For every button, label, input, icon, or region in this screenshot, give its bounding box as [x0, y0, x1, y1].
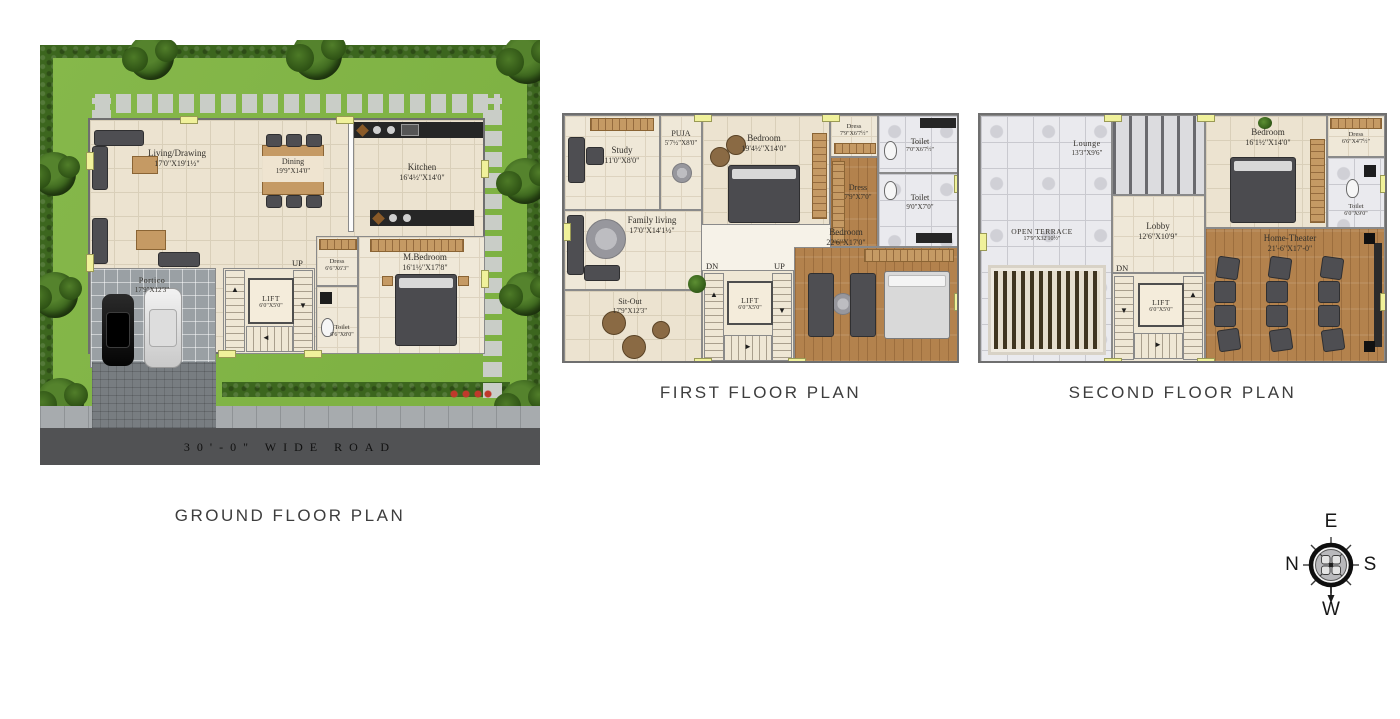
theater-seat: [1214, 281, 1236, 303]
shelf: [590, 118, 654, 131]
kitchen-label: Kitchen 16'4½"X14'0": [399, 162, 444, 182]
speaker-icon: [1364, 233, 1375, 244]
lift: LIFT 6'0"X5'0": [248, 278, 294, 324]
puja-label: PUJA 5'7½"X8'0": [665, 129, 698, 147]
car-roof: [106, 312, 130, 348]
wardrobe: [864, 249, 954, 262]
sink-icon: [373, 126, 381, 134]
stair-arrow-icon: ►: [1154, 341, 1162, 349]
wall-marker: [954, 175, 959, 193]
bed: [728, 165, 800, 223]
theater-seat: [1266, 305, 1288, 327]
puja-motif: [672, 163, 692, 183]
sofa: [94, 130, 144, 146]
second-floor-title: SECOND FLOOR PLAN: [978, 383, 1387, 403]
sofa: [92, 146, 108, 190]
dn-label: DN: [706, 261, 718, 271]
wardrobe: [812, 133, 827, 219]
dining-chair: [286, 195, 302, 208]
stair-flight: [1183, 276, 1203, 360]
wall-marker: [86, 254, 94, 272]
round-chair: [622, 335, 646, 359]
hedge-left: [40, 45, 53, 408]
wall-marker: [563, 223, 571, 241]
bedroom-label: Bedroom 16'1½"X14'0": [1245, 127, 1290, 147]
up-label: UP: [292, 258, 303, 268]
sink-icon: [387, 126, 395, 134]
dress2-label: Dress 7'9"X7'0": [844, 183, 871, 201]
study-label: Study 11'0"X8'0": [605, 145, 640, 165]
wall-marker: [1197, 114, 1215, 122]
wall-marker: [1197, 358, 1215, 363]
dress1-label: Dress 7'9"X6'7½": [840, 123, 868, 138]
dining-label: Dining 19'9"X14'0": [276, 157, 310, 175]
tree-icon: [504, 272, 540, 316]
dress-label: Dress 6'6"X6'3": [325, 258, 348, 273]
wall-marker: [1104, 358, 1122, 363]
bed: [884, 271, 950, 339]
wall-marker: [979, 233, 987, 251]
theater-seat: [1318, 281, 1340, 303]
wardrobe: [834, 143, 876, 154]
dining-chair: [266, 195, 282, 208]
wall-marker: [336, 116, 354, 124]
sofa: [850, 273, 876, 337]
sitout-label: Sit-Out 17'9"X12'3": [613, 297, 647, 315]
wall-marker: [481, 160, 489, 178]
pillows: [888, 275, 946, 287]
kitchen-counter: [370, 210, 474, 226]
stair-arrow-down-icon: ▼: [1120, 307, 1128, 315]
bed: [395, 274, 457, 346]
wall-marker: [694, 114, 712, 122]
pergola: [988, 265, 1106, 355]
stair-flight: [293, 270, 313, 352]
wall-marker: [788, 358, 806, 363]
road: 30'-0" WIDE ROAD: [40, 428, 540, 465]
theater-seat: [1214, 305, 1236, 327]
wall-marker: [304, 350, 322, 358]
theater-seat: [1318, 305, 1340, 327]
dress-label: Dress 6'6"X4'7½": [1342, 131, 1370, 146]
compass-west-label: W: [1322, 599, 1340, 621]
stair-arrow-up-icon: ▲: [1189, 291, 1197, 299]
pergola-slats: [994, 271, 1100, 349]
wall-marker: [954, 293, 959, 311]
wardrobe: [1330, 118, 1382, 129]
sink-icon: [403, 214, 411, 222]
driveway: [92, 362, 216, 428]
stair-flight: [704, 273, 724, 361]
bedroom2-label: Bedroom 22'6"X17'0": [826, 227, 865, 247]
dn-label: DN: [1116, 263, 1128, 273]
desk-chair: [586, 147, 604, 165]
vanity-counter: [916, 233, 952, 243]
dining-chair: [306, 134, 322, 147]
family-living-label: Family living 17'0"X14'1½": [628, 215, 677, 235]
lift: LIFT 6'0"X5'0": [727, 281, 773, 325]
side-table: [382, 276, 393, 286]
wall-marker: [218, 350, 236, 358]
compass-rose: E N S W: [1281, 513, 1381, 617]
white-car: [144, 288, 182, 368]
living-room-label: Living/Drawing 17'0"X19'1½": [148, 148, 206, 168]
toilet-icon: [884, 141, 897, 160]
bedroom1-label: Bedroom 19'4½"X14'0": [741, 133, 786, 153]
speaker-icon: [1364, 341, 1375, 352]
up-label: UP: [774, 261, 785, 271]
toilet-icon: [884, 181, 897, 200]
home-theater-label: Home-Theater 21'-6"X17'-0": [1264, 233, 1316, 253]
stair-arrow-icon: ►: [744, 343, 752, 351]
road-label: 30'-0" WIDE ROAD: [40, 440, 540, 455]
theater-seat: [1321, 328, 1346, 353]
theater-seat: [1216, 256, 1241, 281]
stair-arrow-up-icon: ▲: [710, 291, 718, 299]
stair-arrow-down-icon: ▼: [778, 307, 786, 315]
theater-seat: [1217, 328, 1242, 353]
stair-flight: [225, 270, 245, 352]
wall-marker: [1380, 175, 1387, 193]
vanity-counter: [920, 118, 956, 128]
stair-arrow-down-icon: ▼: [299, 302, 307, 310]
paver-walk-right: [483, 98, 502, 398]
tree-icon: [502, 158, 540, 204]
compass-south-label: S: [1364, 554, 1377, 576]
skylight: [1112, 115, 1205, 195]
theater-seat: [1269, 328, 1294, 353]
bed: [1230, 157, 1296, 223]
wardrobe: [1310, 139, 1325, 223]
stove-icon: [401, 124, 419, 136]
first-floor-plan: Study 11'0"X8'0" PUJA 5'7½"X8'0" Bedroom…: [562, 113, 959, 363]
wall-marker: [1104, 114, 1122, 122]
flower-bed: [448, 388, 492, 400]
lobby-label: Lobby 12'6"X10'9": [1138, 221, 1177, 241]
lift: LIFT 6'0"X5'0": [1138, 283, 1184, 327]
second-floor-plan: Lounge 13'3"X9'6" OPEN TERRACE 17'9"X32'…: [978, 113, 1387, 363]
stair-flight: [1114, 276, 1134, 360]
portico-label: Portico 17'9"X12'3": [135, 276, 169, 294]
pillows: [399, 278, 453, 288]
toilet2-label: Toilet 9'0"X7'0": [906, 193, 933, 211]
cutting-board-icon: [356, 124, 369, 137]
sofa: [584, 265, 620, 281]
toilet-icon: [1346, 179, 1359, 198]
ground-floor-title: GROUND FLOOR PLAN: [40, 506, 540, 526]
rug: [586, 219, 626, 259]
washbasin-icon: [1364, 165, 1376, 177]
compass-east-label: E: [1325, 511, 1338, 533]
open-terrace-label: OPEN TERRACE 17'9"X32'10½": [1011, 227, 1073, 243]
kitchen-counter: [354, 122, 483, 138]
washbasin-icon: [320, 292, 332, 304]
theater-seat: [1266, 281, 1288, 303]
coffee-table: [136, 230, 166, 250]
toilet-label: Toilet 6'0"X9'0": [1344, 203, 1367, 218]
wall-marker: [481, 270, 489, 288]
plant-icon: [688, 275, 706, 293]
wardrobe: [370, 239, 464, 252]
stair-arrow-up-icon: ▲: [231, 286, 239, 294]
wall-marker: [86, 152, 94, 170]
lounge-label: Lounge 13'3"X9'6": [1072, 139, 1103, 157]
dining-chair: [266, 134, 282, 147]
theater-seat: [1320, 256, 1345, 281]
side-table: [458, 276, 469, 286]
wall-marker: [1380, 293, 1387, 311]
sofa: [158, 252, 200, 267]
black-car: [102, 294, 134, 366]
wall-marker: [694, 358, 712, 363]
stair-arrow-icon: ◄: [262, 334, 270, 342]
desk: [568, 137, 585, 183]
sofa: [808, 273, 834, 337]
first-floor-title: FIRST FLOOR PLAN: [562, 383, 959, 403]
cutting-board-icon: [372, 212, 385, 225]
paver-walk-top: [95, 94, 500, 113]
wardrobe: [319, 239, 357, 250]
sink-icon: [389, 214, 397, 222]
theater-seat: [1268, 256, 1293, 281]
hedge-right: [527, 45, 540, 408]
wall-marker: [822, 114, 840, 122]
dining-chair: [306, 195, 322, 208]
dining-chair: [286, 134, 302, 147]
pillows: [732, 169, 796, 179]
toilet-label: Toilet 6'6"X8'0": [330, 324, 353, 339]
wall-marker: [180, 116, 198, 124]
compass-north-label: N: [1285, 554, 1299, 576]
car-roof: [149, 309, 177, 347]
sofa: [92, 218, 108, 264]
master-bedroom-label: M.Bedroom 16'1½"X17'8": [402, 252, 447, 272]
toilet1-label: Toilet 7'0"X6'7½": [906, 137, 934, 154]
ground-floor-plan: 30'-0" WIDE ROAD Living/Drawing 17'0"X19…: [40, 40, 540, 465]
stair-flight: [772, 273, 792, 361]
round-table: [652, 321, 670, 339]
pillows: [1234, 161, 1292, 171]
